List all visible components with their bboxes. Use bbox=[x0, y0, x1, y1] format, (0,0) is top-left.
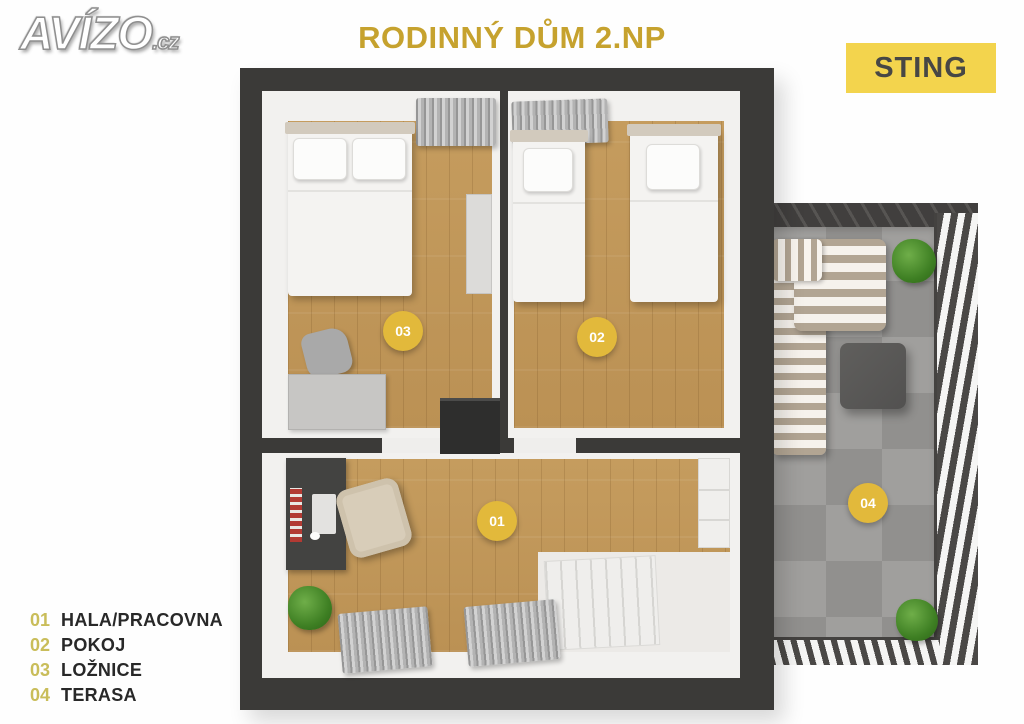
computer-mouse bbox=[310, 532, 320, 540]
window-curtain-right bbox=[464, 599, 561, 667]
terrace-plant-bottom bbox=[896, 599, 938, 641]
double-bed bbox=[288, 126, 412, 296]
legend-label: HALA/PRACOVNA bbox=[61, 610, 223, 631]
legend-number: 01 bbox=[30, 610, 50, 631]
books bbox=[290, 488, 302, 542]
room-marker-02: 02 bbox=[577, 317, 617, 357]
door-opening-loznice bbox=[382, 438, 448, 453]
legend-row: 03 LOŽNICE bbox=[30, 658, 223, 683]
staircase bbox=[544, 555, 661, 651]
door-opening-pokoj bbox=[514, 438, 576, 453]
room-legend: 01 HALA/PRACOVNA 02 POKOJ 03 LOŽNICE 04 … bbox=[30, 608, 223, 708]
wall-panel bbox=[698, 458, 730, 548]
legend-number: 04 bbox=[30, 685, 50, 706]
terrace-sofa-pillow bbox=[772, 239, 822, 281]
bed-pillow bbox=[352, 138, 406, 180]
legend-row: 02 POKOJ bbox=[30, 633, 223, 658]
window-curtain-left bbox=[338, 606, 433, 674]
curtain-loznice bbox=[416, 98, 496, 146]
legend-label: LOŽNICE bbox=[61, 660, 142, 681]
bed-headboard bbox=[285, 122, 415, 134]
bed-blanket bbox=[513, 202, 585, 302]
legend-row: 04 TERASA bbox=[30, 683, 223, 708]
bed-headboard bbox=[627, 124, 721, 136]
dark-wardrobe bbox=[440, 398, 500, 454]
bed-blanket bbox=[288, 190, 412, 296]
legend-number: 03 bbox=[30, 660, 50, 681]
room-marker-04: 04 bbox=[848, 483, 888, 523]
bed-headboard bbox=[510, 130, 588, 142]
dresser bbox=[466, 194, 492, 294]
floorplan-image: AVÍZO.cz RODINNÝ DŮM 2.NP STING bbox=[0, 0, 1024, 724]
bed-pillow bbox=[293, 138, 347, 180]
legend-row: 01 HALA/PRACOVNA bbox=[30, 608, 223, 633]
room-marker-01: 01 bbox=[477, 501, 517, 541]
terrace-railing-bottom bbox=[770, 637, 940, 665]
bed-pillow bbox=[646, 144, 700, 190]
single-bed-right bbox=[630, 128, 718, 302]
laptop bbox=[312, 494, 336, 534]
terrace-ottoman bbox=[840, 343, 906, 409]
terrace-railing-right bbox=[934, 213, 978, 665]
building-plan bbox=[240, 68, 774, 710]
legend-label: POKOJ bbox=[61, 635, 126, 656]
terrace-plant-top bbox=[892, 239, 936, 283]
terrace-area bbox=[770, 203, 978, 665]
legend-number: 02 bbox=[30, 635, 50, 656]
hall-plant bbox=[288, 586, 332, 630]
desk-loznice bbox=[288, 374, 386, 430]
sting-brand-badge: STING bbox=[846, 43, 996, 93]
legend-label: TERASA bbox=[61, 685, 137, 706]
single-bed-left bbox=[513, 134, 585, 302]
bed-blanket bbox=[630, 200, 718, 302]
bed-pillow bbox=[523, 148, 573, 192]
room-marker-03: 03 bbox=[383, 311, 423, 351]
